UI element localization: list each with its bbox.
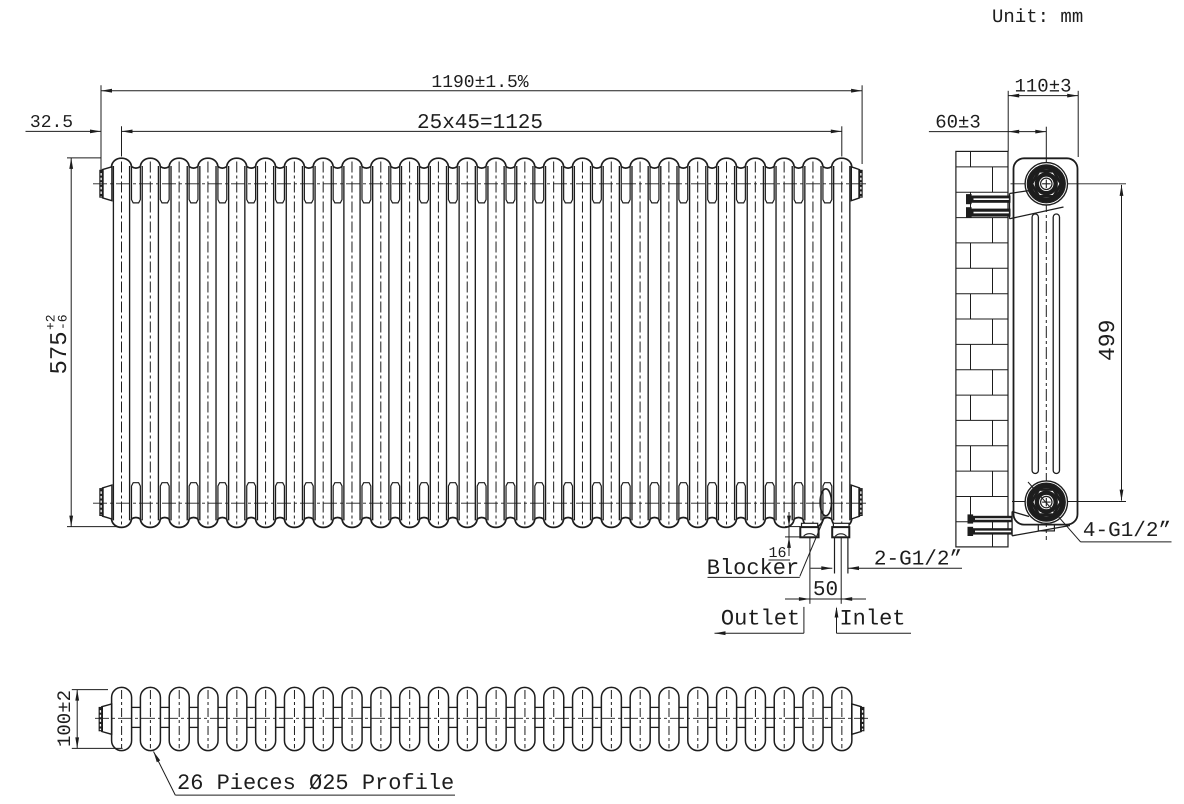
svg-text:60±3: 60±3 bbox=[935, 112, 981, 134]
svg-text:25x45=1125: 25x45=1125 bbox=[417, 112, 543, 135]
svg-text:Unit: mm: Unit: mm bbox=[992, 6, 1083, 28]
svg-text:4-G1/2”: 4-G1/2” bbox=[1083, 520, 1171, 543]
svg-text:Inlet: Inlet bbox=[839, 607, 905, 632]
svg-text:499: 499 bbox=[1095, 320, 1121, 361]
svg-text:26 Pieces Ø25 Profile: 26 Pieces Ø25 Profile bbox=[177, 771, 454, 796]
svg-text:50: 50 bbox=[813, 579, 838, 602]
svg-text:Outlet: Outlet bbox=[721, 607, 800, 632]
svg-text:1190±1.5%: 1190±1.5% bbox=[431, 73, 528, 93]
svg-text:2-G1/2”: 2-G1/2” bbox=[874, 549, 962, 572]
svg-text:110±3: 110±3 bbox=[1014, 76, 1071, 98]
svg-text:32.5: 32.5 bbox=[30, 113, 73, 133]
svg-text:100±2: 100±2 bbox=[54, 690, 76, 747]
svg-text:575: 575 bbox=[47, 331, 74, 374]
svg-text:-6: -6 bbox=[56, 314, 71, 330]
